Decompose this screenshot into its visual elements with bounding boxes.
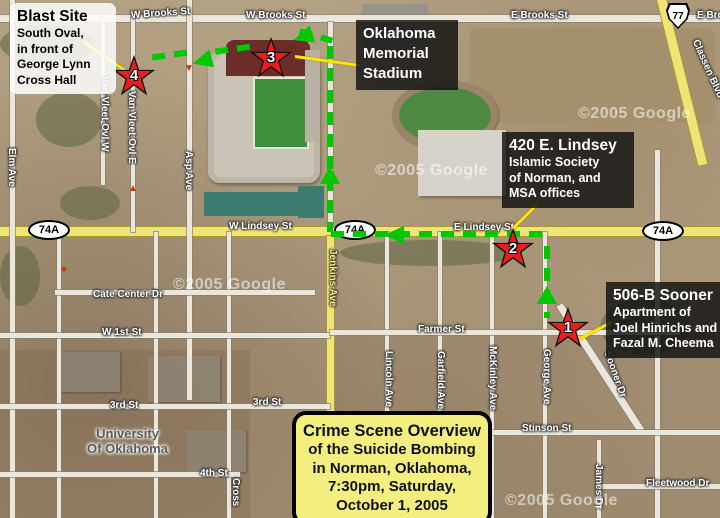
street-label-lincoln: Lincoln Ave [383,351,394,407]
callout-line: South Oval, [17,26,109,42]
street-label-e-brooks-2: E Brooks St [697,10,720,21]
crime-scene-map: W Brooks St W Brooks St E Brooks St E Br… [0,0,720,518]
tree-cluster [60,186,120,220]
marker-star-4: 4 [112,54,156,98]
street-label-fleetwood: Fleetwood Dr [646,478,709,489]
marker-star-2: 2 [491,227,535,271]
one-way-arrow-icon: ▼ [59,266,69,276]
marker-number: 1 [546,319,590,336]
google-watermark: ©2005 Google [173,276,286,294]
campus-building-3 [186,430,246,472]
callout-line: Islamic Society [509,155,627,171]
marker-number: 4 [112,67,156,84]
street-label-farmer: Farmer St [418,324,465,335]
callout-title: Blast Site [17,7,109,26]
street-label-w-brooks-2: W Brooks St [246,10,305,21]
tennis-courts [204,192,306,216]
route-74a-shield: 74A [642,221,684,241]
route-arrow-west-icon [291,25,316,48]
map-title-line: October 1, 2005 [298,497,486,516]
callout-line: Cross Hall [17,73,109,89]
marker-number: 2 [491,240,535,257]
street-label-w-1st: W 1st St [102,327,141,338]
marker-number: 3 [249,49,293,66]
route-arrow-north-icon [537,286,557,304]
stadium-east-wing [305,50,320,142]
street-label-asp: Asp Ave [183,151,194,190]
street-label-e-brooks-1: E Brooks St [511,10,568,21]
callout-stadium: Oklahoma Memorial Stadium [356,20,458,90]
callout-line: MSA offices [509,186,627,202]
callout-line: George Lynn [17,57,109,73]
street-label-garfield: Garfield Ave [435,351,446,409]
w-1st-road [0,333,330,338]
tennis-courts-2 [298,186,324,218]
callout-line: Apartment of [613,305,720,321]
street-label-cate-center: Cate Center Dr [93,289,163,300]
route-74a-shield: 74A [28,220,70,240]
street-label-stinson: Stinson St [522,423,571,434]
route-arrow-north-icon [320,166,340,184]
map-title-box: Crime Scene Overview of the Suicide Bomb… [292,411,492,518]
callout-line: Memorial [363,44,451,64]
google-watermark: ©2005 Google [578,105,691,123]
map-title-line: of the Suicide Bombing [298,441,486,460]
callout-506b-sooner: 506-B Sooner Apartment of Joel Hinrichs … [606,282,720,358]
street-label-3rd-1: 3rd St [110,400,138,411]
university-label: University Of Oklahoma [70,426,185,456]
street-label-cross: Cross [230,478,241,506]
map-title-line: 7:30pm, Saturday, [298,478,486,497]
callout-line: Joel Hinrichs and [613,321,720,337]
street-label-jenkins: Jenkins Ave [327,249,338,307]
tree-cluster [0,246,40,306]
street-label-mckinley: McKinley Ave [487,346,498,410]
callout-title: 506-B Sooner [613,286,720,305]
campus-building-2 [148,356,220,402]
callout-line: Oklahoma [363,24,451,44]
street-label-4th: 4th St [200,468,228,479]
campus-building-1 [58,352,120,392]
map-title-line: Crime Scene Overview [298,421,486,441]
street-label-elm: Elm Ave [6,148,17,187]
street-label-w-lindsey: W Lindsey St [229,221,292,232]
route-segment-jenkins [327,46,333,232]
callout-420-lindsey: 420 E. Lindsey Islamic Society of Norman… [502,132,634,208]
street-label-van-vleet-e: Van Vleet Ovl E [126,91,137,164]
tree-cluster [36,92,102,147]
route-segment-to-blast [152,50,188,61]
street-label-3rd-2: 3rd St [253,397,281,408]
callout-line: in front of [17,42,109,58]
google-watermark: ©2005 Google [375,162,488,180]
callout-title: 420 E. Lindsey [509,136,627,155]
callout-line: Fazal M. Cheema [613,336,720,352]
route-74a-shield: 74A [334,220,376,240]
route-arrow-west-icon [384,226,404,244]
street-label-george: George Ave [541,349,552,404]
callout-line: of Norman, and [509,171,627,187]
callout-line: Stadium [363,64,451,84]
google-watermark: ©2005 Google [505,492,618,510]
marker-star-3: 3 [249,36,293,80]
map-title-line: in Norman, Oklahoma, [298,460,486,479]
stadium-field [253,77,309,149]
marker-star-1: 1 [546,306,590,350]
one-way-arrow-icon: ▲ [128,184,138,194]
callout-blast-site: Blast Site South Oval, in front of Georg… [10,3,116,94]
